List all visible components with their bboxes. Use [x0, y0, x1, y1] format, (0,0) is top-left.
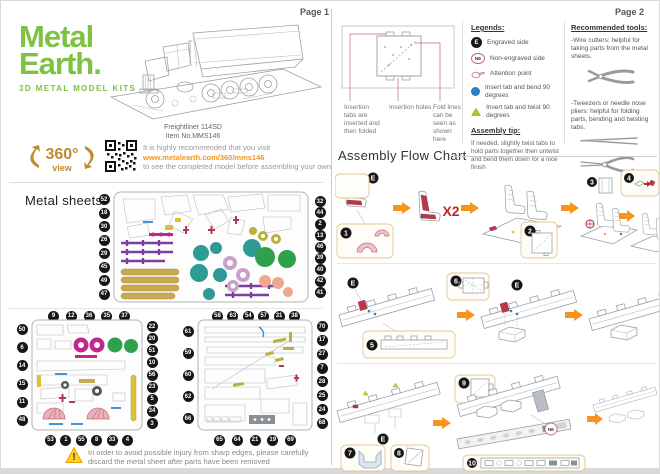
part-number-badge: 23	[147, 382, 158, 393]
part-number-badge: 61	[183, 326, 194, 337]
strip-detail-part	[481, 458, 579, 468]
part-number-badge: 5	[147, 394, 158, 405]
engraved-marker: E	[381, 437, 386, 444]
twist-triangle-icon	[471, 107, 481, 117]
step-2-badge: 2	[528, 229, 532, 236]
part-number-badge: 39	[315, 253, 326, 264]
insertion-holes-label: Insertion holes	[389, 104, 435, 112]
part-number-badge: 46	[315, 242, 326, 253]
part-number-badge: 1	[60, 435, 71, 446]
part-number-badge: 10	[147, 357, 158, 368]
step-6-badge: 6	[454, 279, 458, 286]
assembly-flow-chart-title: Assembly Flow Chart	[338, 148, 467, 163]
qr-code	[105, 140, 137, 172]
flow-row-1: E 1 X2 2 3	[335, 164, 660, 262]
product-item-number: Item No.MMS146	[113, 132, 273, 141]
sheet1-left-badges: 5218302629454947	[98, 194, 110, 300]
column-divider	[462, 21, 463, 143]
engraved-marker: E	[371, 176, 376, 183]
center-divider	[331, 9, 332, 465]
x2-label: X2	[442, 203, 459, 219]
part-number-badge: 28	[317, 376, 328, 387]
recommendation-line-2: to see the completed model before assemb…	[143, 162, 331, 172]
chassis-rail	[480, 286, 577, 329]
wire-cutters-text: -Wire cutters: helpful for taking parts …	[571, 37, 657, 61]
warning-icon: !	[65, 447, 83, 464]
part-number-badge: 11	[17, 397, 28, 408]
non-engraved-badge-icon: NE	[471, 53, 485, 64]
part-number-badge: 30	[99, 221, 110, 232]
truck-illustration	[93, 19, 323, 124]
row-divider	[337, 263, 657, 264]
assembly-tip-title: Assembly tip:	[471, 126, 561, 135]
engraved-marker: E	[351, 281, 356, 288]
part-number-badge: 8	[91, 435, 102, 446]
non-engraved-marker: NE	[548, 427, 554, 432]
step-4-badge: 4	[627, 176, 631, 183]
title-rule	[453, 156, 657, 157]
part-number-badge: 41	[315, 287, 326, 298]
part-number-badge: 34	[147, 406, 158, 417]
sheet2-left-badges: 50614151148	[16, 324, 28, 426]
metal-sheet-1	[113, 191, 309, 303]
part-number-badge: 4	[122, 435, 133, 446]
column-divider	[564, 21, 565, 143]
step-8-badge: 8	[397, 451, 401, 458]
part-number-badge: 55	[76, 435, 87, 446]
recommendation-line-1: It is highly recommended that you visit	[143, 143, 331, 153]
part-number-badge: 66	[183, 413, 194, 424]
part-number-badge: 48	[17, 415, 28, 426]
part-number-badge: 29	[99, 248, 110, 259]
insertion-tabs-label: Insertion tabs are inserted and then fol…	[344, 104, 382, 136]
part-number-badge: 53	[45, 435, 56, 446]
step-1-badge: 1	[344, 231, 348, 238]
fold-lines-label: Fold lines can be seen as shown here	[433, 104, 461, 144]
360-number: 360°	[45, 146, 78, 163]
part-number-badge: 24	[317, 404, 328, 415]
legend-attention: Attention point	[471, 69, 561, 79]
part-number-badge: 13	[315, 230, 326, 241]
bracket-part	[459, 278, 488, 293]
part-number-badge: 64	[232, 435, 243, 446]
yellow-bar	[131, 375, 136, 421]
step-9-badge: 9	[462, 381, 466, 388]
tweezers-text: -Tweezers or needle nose pliers: helpful…	[571, 100, 657, 132]
part-number-badge: 52	[99, 194, 110, 205]
swoosh-left	[30, 145, 40, 168]
sheet3-right-badges: 701727728252468	[316, 321, 328, 429]
divider	[9, 308, 323, 309]
part-number-badge: 45	[99, 262, 110, 273]
swoosh-right	[84, 146, 94, 169]
legends-title: Legends:	[471, 23, 561, 32]
bracket-part	[405, 448, 423, 466]
part-number-badge: 68	[317, 418, 328, 429]
box-part	[599, 178, 612, 193]
metal-sheet-2	[31, 319, 143, 431]
attached-box	[611, 325, 637, 340]
legend-engraved: E Engraved side	[471, 37, 561, 48]
part-number-badge: 19	[267, 435, 278, 446]
metal-sheets-title: Metal sheets	[25, 193, 102, 208]
360-view-word: view	[52, 163, 73, 173]
part-number-badge: 51	[147, 345, 158, 356]
part-number-badge: 62	[183, 391, 194, 402]
legend-non-engraved: NE Non-engraved side	[471, 53, 561, 64]
magenta-bits	[149, 233, 173, 237]
finished-chassis	[592, 384, 657, 423]
engraved-badge-icon: E	[471, 37, 482, 48]
warning-mark: !	[72, 452, 75, 463]
part-number-badge: 49	[99, 275, 110, 286]
sheet1-right-badges: 32442134639404241	[314, 196, 326, 298]
row-divider	[337, 363, 657, 364]
instruction-sheet: Page 1 Metal Earth. 3D METAL MODEL KITS …	[0, 0, 660, 474]
part-number-badge: 50	[17, 324, 28, 335]
warning-text: In order to avoid possible injury from s…	[88, 448, 309, 466]
recommendation-text: It is highly recommended that you visit …	[143, 143, 331, 172]
part-number-badge: 22	[147, 321, 158, 332]
part-number-badge: 60	[183, 370, 194, 381]
part-number-badge: 27	[317, 349, 328, 360]
legend-bend: Insert tab and bend 90 degrees	[471, 84, 561, 99]
chassis-rail	[336, 378, 441, 423]
recommendation-url: www.metalearth.com/360/mms146	[143, 153, 331, 163]
sheet2-right-badges: 2220511056235343	[146, 321, 158, 429]
part-number-badge: 26	[99, 235, 110, 246]
flow-row-3: E 7 8 9	[335, 365, 660, 473]
part-number-badge: 21	[250, 435, 261, 446]
part-number-badge: 33	[107, 435, 118, 446]
bend-dot-icon	[471, 87, 480, 96]
sheet2-bottom-badges: 531558334	[45, 434, 133, 446]
part-number-badge: 70	[317, 321, 328, 332]
part-number-badge: 47	[99, 289, 110, 300]
base-sheet-outline	[111, 69, 321, 119]
metal-sheet-3	[197, 319, 313, 431]
part-number-badge: 7	[317, 363, 328, 374]
engraved-marker: E	[515, 283, 520, 290]
cab-interior-assembly	[581, 203, 637, 244]
step-7-badge: 7	[348, 451, 352, 458]
part-number-badge: 17	[317, 335, 328, 346]
sheet3-left-badges: 6159606266	[182, 326, 194, 424]
tools-section: Recommended tools: -Wire cutters: helpfu…	[571, 23, 657, 182]
part-number-badge: 40	[315, 264, 326, 275]
warning-line-2: discard the metal sheet after parts have…	[88, 457, 309, 466]
product-name: Freightliner 114SD	[113, 123, 273, 132]
finished-interior	[631, 213, 660, 252]
part-number-badge: 20	[147, 333, 158, 344]
page-2-label: Page 2	[615, 7, 644, 17]
page-1-label: Page 1	[300, 7, 329, 17]
divider	[9, 182, 323, 183]
chassis-rail	[338, 284, 435, 327]
part-number-badge: 42	[315, 276, 326, 287]
product-info: Freightliner 114SD Item No.MMS146	[113, 123, 273, 141]
step-10-badge: 10	[468, 461, 476, 468]
part-number-badge: 25	[317, 390, 328, 401]
seat-x2	[419, 191, 440, 221]
flow-row-2: E 5 6 E	[335, 267, 660, 361]
part-number-badge: 56	[147, 370, 158, 381]
part-number-badge: 2	[315, 219, 326, 230]
tweezers-icon	[579, 136, 641, 146]
part-number-badge: 69	[285, 435, 296, 446]
part-number-badge: 15	[17, 379, 28, 390]
wire-cutters-icon	[581, 65, 641, 91]
step-5-badge: 5	[370, 343, 374, 350]
attention-hand-icon	[471, 69, 485, 79]
step-3-badge: 3	[590, 180, 594, 187]
part-number-badge: 65	[214, 435, 225, 446]
warning-line-1: In order to avoid possible injury from s…	[88, 448, 309, 457]
part-number-badge: 18	[99, 208, 110, 219]
part-number-badge: 6	[17, 342, 28, 353]
360-view-badge: 360° view	[25, 139, 99, 177]
part-number-badge: 59	[183, 348, 194, 359]
fuel-tank-box	[499, 327, 525, 342]
sheet3-bottom-badges: 6564211969	[214, 434, 296, 446]
chassis-rail	[588, 288, 660, 331]
insertion-diagram	[339, 23, 461, 103]
part-number-badge: 14	[17, 360, 28, 371]
floor-panel-part	[532, 231, 552, 256]
tools-title: Recommended tools:	[571, 23, 657, 32]
part-number-badge: 32	[315, 196, 326, 207]
part-number-badge: 3	[147, 418, 158, 429]
legend-twist: Insert tab and twist 90 degrees	[471, 104, 561, 119]
legends-section: Legends: E Engraved side NE Non-engraved…	[471, 23, 561, 172]
part-number-badge: 44	[315, 207, 326, 218]
